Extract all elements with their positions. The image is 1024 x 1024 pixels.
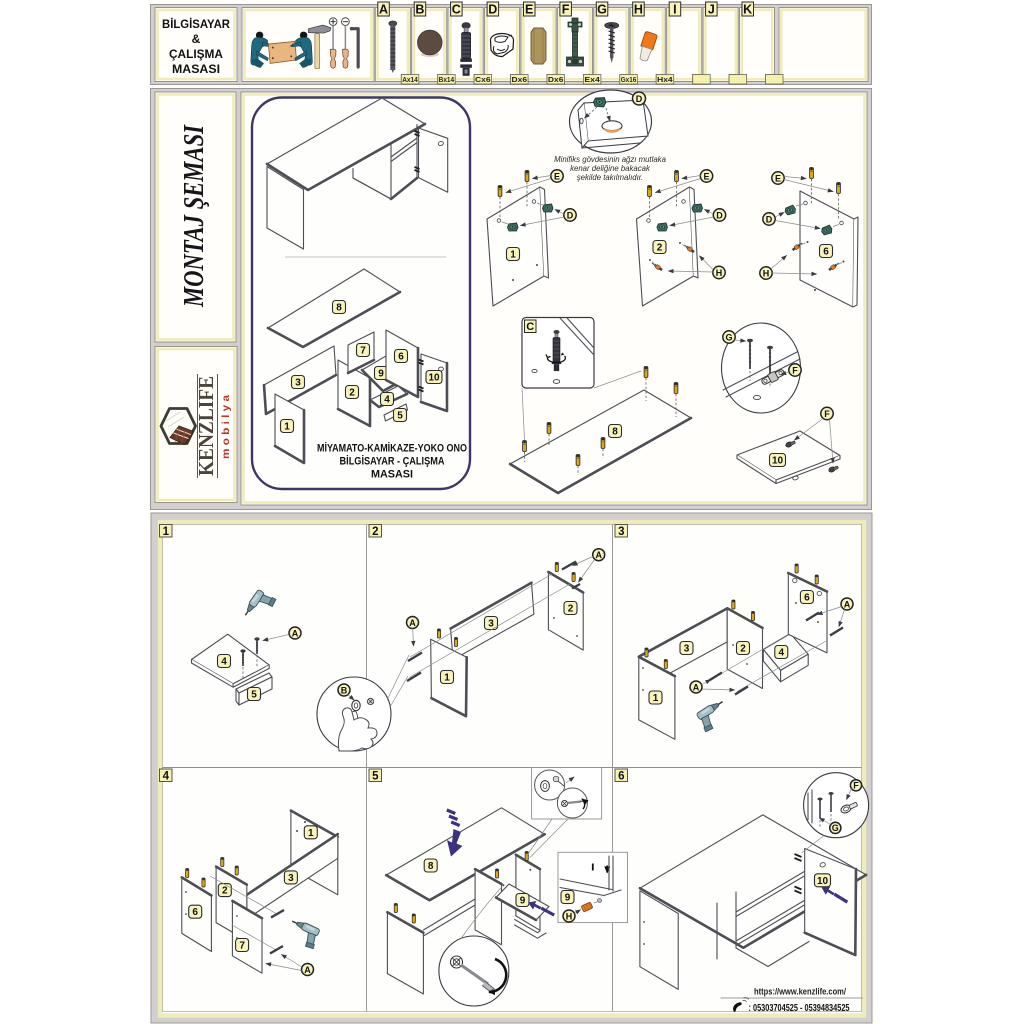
svg-text:K: K	[743, 3, 752, 17]
svg-text:G: G	[832, 823, 839, 833]
svg-text:3: 3	[618, 526, 624, 538]
svg-text:7: 7	[239, 941, 245, 952]
svg-text:8: 8	[336, 303, 342, 314]
svg-text:A: A	[693, 682, 700, 692]
svg-text:6: 6	[398, 352, 404, 363]
svg-text:6: 6	[618, 771, 624, 783]
svg-text:4: 4	[384, 395, 390, 406]
svg-text:KENZLIFE: KENZLIFE	[194, 376, 218, 476]
svg-text:A: A	[844, 599, 851, 609]
svg-text:6: 6	[804, 593, 810, 604]
svg-text:F: F	[562, 3, 570, 17]
svg-text:MASASI: MASASI	[371, 469, 413, 481]
svg-text:B: B	[341, 685, 348, 695]
svg-text:F: F	[792, 365, 798, 375]
svg-text:2: 2	[372, 526, 378, 538]
svg-text:9: 9	[565, 893, 571, 904]
svg-text:3: 3	[295, 378, 301, 389]
svg-text:Hx4: Hx4	[657, 75, 673, 84]
svg-text:MİYAMATO-KAMİKAZE-YOKO ONO: MİYAMATO-KAMİKAZE-YOKO ONO	[317, 442, 467, 455]
svg-text:5: 5	[251, 690, 257, 701]
svg-text:Bx14: Bx14	[439, 75, 455, 84]
svg-text:1: 1	[308, 828, 314, 839]
svg-text:F: F	[853, 781, 859, 791]
svg-text:3: 3	[684, 644, 690, 655]
svg-text:D: D	[766, 214, 773, 224]
svg-text:Dx6: Dx6	[548, 75, 564, 84]
svg-text:m o b i l y a: m o b i l y a	[220, 395, 232, 459]
svg-text:G: G	[725, 332, 732, 342]
svg-text:A: A	[409, 618, 416, 628]
svg-text:&: &	[192, 32, 201, 46]
svg-text:10: 10	[428, 373, 440, 384]
svg-text:10: 10	[817, 876, 829, 887]
svg-text:3: 3	[288, 873, 294, 884]
svg-text:H: H	[566, 911, 573, 921]
svg-text:A: A	[379, 3, 388, 17]
svg-text:BİLGİSAYAR - ÇALIŞMA: BİLGİSAYAR - ÇALIŞMA	[340, 455, 445, 468]
svg-text:B: B	[415, 3, 424, 17]
svg-text:9: 9	[520, 896, 526, 907]
svg-text:BİLGİSAYAR: BİLGİSAYAR	[162, 16, 230, 31]
svg-text:4: 4	[163, 771, 170, 783]
svg-text:C: C	[452, 3, 461, 17]
svg-text:Gx16: Gx16	[621, 75, 637, 84]
svg-text:H: H	[716, 268, 723, 278]
svg-text:F: F	[824, 409, 830, 419]
svg-text:E: E	[775, 173, 781, 183]
svg-text:A: A	[304, 965, 311, 975]
svg-text:J: J	[708, 3, 715, 17]
svg-text:H: H	[763, 268, 770, 278]
svg-text:Ax14: Ax14	[402, 75, 418, 84]
svg-text:D: D	[488, 3, 497, 17]
svg-text:3: 3	[488, 619, 494, 630]
svg-text:https://www.kenzlife.com/: https://www.kenzlife.com/	[754, 987, 846, 998]
svg-text:D: D	[567, 210, 574, 220]
svg-text:1: 1	[653, 693, 659, 704]
svg-text:7: 7	[360, 346, 366, 357]
svg-text:2: 2	[657, 243, 663, 254]
svg-text:1: 1	[444, 673, 450, 684]
svg-text:1: 1	[284, 422, 290, 433]
svg-text:5: 5	[397, 411, 403, 422]
svg-text:8: 8	[612, 427, 618, 438]
svg-text:6: 6	[192, 907, 198, 918]
svg-text:Minifiks gövdesinin ağzı mutla: Minifiks gövdesinin ağzı mutlaka	[554, 155, 666, 164]
svg-text:4: 4	[221, 657, 227, 668]
svg-text:E: E	[525, 3, 533, 17]
svg-text:A: A	[595, 550, 602, 560]
svg-text:10: 10	[772, 456, 784, 467]
svg-text:Cx6: Cx6	[475, 75, 491, 84]
svg-text:MASASI: MASASI	[172, 62, 220, 76]
svg-text:ÇALIŞMA: ÇALIŞMA	[169, 47, 223, 61]
svg-text:I: I	[673, 3, 676, 17]
svg-text:Ex4: Ex4	[584, 75, 600, 84]
svg-text:2: 2	[349, 388, 355, 399]
svg-text:D: D	[716, 210, 723, 220]
svg-text:8: 8	[428, 861, 434, 872]
svg-text:şekilde takılmalıdır.: şekilde takılmalıdır.	[577, 173, 643, 182]
svg-text:4: 4	[779, 648, 785, 659]
svg-text:9: 9	[378, 369, 384, 380]
svg-text:Dx6: Dx6	[512, 75, 528, 84]
svg-text:6: 6	[823, 247, 829, 258]
svg-text:H: H	[634, 3, 643, 17]
svg-text:kenar deliğine bakacak: kenar deliğine bakacak	[570, 164, 651, 173]
svg-text:E: E	[554, 171, 560, 181]
svg-text:MONTAJ ŞEMASI: MONTAJ ŞEMASI	[179, 124, 210, 308]
svg-text:A: A	[292, 628, 299, 638]
svg-text:1: 1	[163, 526, 170, 538]
svg-text:G: G	[597, 3, 607, 17]
svg-text:E: E	[703, 171, 709, 181]
svg-text:C: C	[526, 321, 534, 333]
svg-text:2: 2	[568, 604, 574, 615]
svg-text:5: 5	[372, 771, 379, 783]
svg-text:2: 2	[740, 644, 746, 655]
svg-text:2: 2	[222, 886, 228, 897]
svg-text:D: D	[636, 94, 643, 104]
svg-text:1: 1	[510, 250, 516, 261]
svg-text:: 05303704525 - 05394834525: : 05303704525 - 05394834525	[749, 1003, 850, 1014]
